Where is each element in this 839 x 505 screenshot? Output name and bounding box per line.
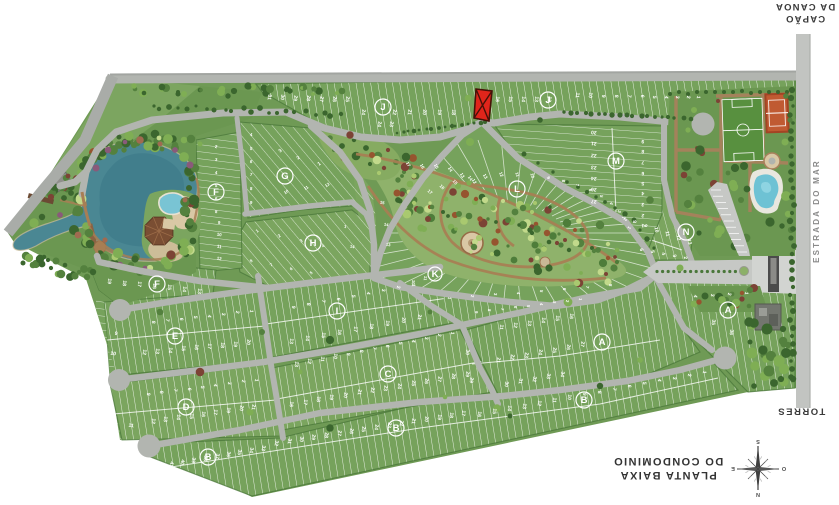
svg-text:DO CONDOMINIO: DO CONDOMINIO: [613, 455, 723, 467]
svg-text:13: 13: [293, 361, 300, 367]
svg-text:20: 20: [423, 416, 430, 422]
svg-text:24: 24: [373, 424, 380, 430]
svg-text:40: 40: [179, 459, 186, 465]
svg-text:13: 13: [154, 348, 161, 354]
svg-text:37: 37: [214, 453, 221, 459]
svg-text:13: 13: [288, 338, 295, 344]
svg-text:14: 14: [540, 317, 547, 323]
svg-text:18: 18: [121, 280, 128, 286]
svg-text:10: 10: [587, 92, 594, 98]
svg-text:26: 26: [331, 96, 338, 102]
svg-text:ESTRADA DO MAR: ESTRADA DO MAR: [812, 159, 821, 263]
svg-text:19: 19: [384, 320, 391, 326]
svg-text:18: 18: [219, 342, 226, 348]
svg-text:17: 17: [212, 409, 219, 415]
svg-text:19: 19: [225, 407, 232, 413]
svg-text:14: 14: [175, 414, 182, 420]
svg-text:27: 27: [318, 96, 325, 102]
svg-text:25: 25: [344, 96, 351, 102]
svg-text:24: 24: [591, 175, 597, 182]
svg-text:26: 26: [423, 378, 430, 384]
svg-text:18: 18: [315, 396, 322, 402]
svg-text:20: 20: [591, 129, 597, 136]
svg-text:15: 15: [320, 332, 327, 338]
svg-text:12: 12: [306, 358, 313, 364]
svg-text:S: S: [756, 438, 760, 444]
svg-text:22: 22: [398, 420, 405, 426]
svg-text:16: 16: [200, 411, 207, 417]
svg-text:11: 11: [551, 397, 558, 403]
svg-text:17: 17: [206, 343, 213, 349]
svg-text:15: 15: [507, 96, 514, 102]
svg-text:25: 25: [410, 380, 417, 386]
svg-text:O: O: [781, 465, 786, 471]
svg-text:16: 16: [288, 401, 295, 407]
svg-text:41: 41: [168, 461, 175, 467]
svg-text:28: 28: [450, 373, 457, 379]
svg-text:CAPÃO: CAPÃO: [785, 13, 825, 24]
svg-text:28: 28: [305, 95, 312, 101]
svg-text:38: 38: [202, 455, 209, 461]
svg-text:28: 28: [323, 432, 330, 438]
svg-text:42: 42: [156, 463, 163, 469]
svg-text:27: 27: [591, 198, 597, 205]
svg-text:21: 21: [250, 404, 257, 410]
svg-text:25: 25: [551, 347, 558, 353]
svg-text:19: 19: [232, 341, 239, 347]
svg-text:A: A: [599, 337, 606, 348]
svg-text:13: 13: [162, 416, 169, 422]
svg-text:12: 12: [512, 322, 519, 328]
svg-text:36: 36: [225, 451, 232, 457]
svg-text:21: 21: [591, 140, 597, 147]
svg-text:N: N: [683, 227, 690, 238]
svg-text:27: 27: [336, 430, 343, 436]
svg-text:B: B: [581, 395, 588, 406]
svg-text:TORRES: TORRES: [777, 406, 825, 417]
svg-text:16: 16: [476, 411, 483, 417]
svg-text:10: 10: [332, 353, 339, 359]
svg-text:12: 12: [150, 418, 157, 424]
svg-text:11: 11: [498, 324, 505, 330]
svg-text:23: 23: [386, 422, 393, 428]
svg-text:A: A: [725, 305, 732, 316]
svg-text:34: 34: [559, 371, 566, 377]
svg-text:24: 24: [376, 121, 383, 127]
svg-text:20: 20: [238, 405, 245, 411]
svg-text:30: 30: [298, 436, 305, 442]
svg-text:25: 25: [360, 426, 367, 432]
svg-text:22: 22: [509, 354, 516, 360]
svg-text:E: E: [731, 465, 735, 471]
svg-text:J: J: [380, 102, 385, 113]
svg-text:31: 31: [286, 438, 293, 444]
svg-text:10: 10: [566, 394, 573, 400]
svg-text:17: 17: [302, 399, 309, 405]
svg-text:DA CANOA: DA CANOA: [775, 1, 835, 12]
svg-text:21: 21: [410, 418, 417, 424]
svg-text:23: 23: [382, 385, 389, 391]
svg-text:34: 34: [248, 447, 255, 453]
svg-text:12: 12: [536, 400, 543, 406]
svg-text:12: 12: [546, 96, 553, 102]
svg-text:PLANTA BAIXA: PLANTA BAIXA: [619, 469, 716, 481]
svg-text:35: 35: [710, 319, 717, 325]
svg-text:K: K: [432, 269, 439, 280]
svg-text:13: 13: [521, 403, 528, 409]
svg-text:L: L: [514, 184, 520, 195]
svg-text:I: I: [336, 306, 339, 317]
svg-text:M: M: [612, 156, 620, 167]
svg-text:20: 20: [245, 339, 252, 345]
svg-text:19: 19: [328, 394, 335, 400]
svg-text:18: 18: [448, 412, 455, 418]
svg-text:15: 15: [491, 408, 498, 414]
svg-text:24: 24: [396, 383, 403, 389]
svg-text:30: 30: [464, 349, 471, 355]
svg-text:16: 16: [151, 283, 158, 289]
svg-text:23: 23: [523, 352, 530, 358]
svg-text:21: 21: [356, 389, 363, 395]
svg-text:22: 22: [391, 109, 398, 115]
svg-text:20: 20: [342, 392, 349, 398]
svg-text:11: 11: [128, 423, 134, 430]
svg-text:29: 29: [310, 434, 317, 440]
svg-text:35: 35: [236, 449, 243, 455]
svg-text:14: 14: [181, 286, 188, 292]
svg-text:N: N: [756, 491, 760, 497]
svg-text:32: 32: [531, 376, 538, 382]
svg-text:17: 17: [136, 281, 143, 287]
svg-text:27: 27: [436, 376, 443, 382]
svg-text:13: 13: [533, 96, 540, 102]
svg-text:18: 18: [450, 109, 457, 115]
svg-text:39: 39: [190, 457, 197, 463]
svg-text:36: 36: [728, 329, 735, 335]
svg-text:32: 32: [273, 440, 280, 446]
svg-text:29: 29: [292, 95, 299, 101]
svg-text:13: 13: [526, 320, 533, 326]
svg-text:33: 33: [260, 445, 267, 451]
svg-text:15: 15: [166, 284, 173, 290]
svg-text:D: D: [183, 402, 190, 413]
svg-text:14: 14: [506, 405, 513, 411]
svg-text:10: 10: [107, 399, 114, 406]
svg-text:18: 18: [368, 323, 375, 329]
svg-text:16: 16: [336, 329, 343, 335]
svg-text:20: 20: [400, 317, 407, 323]
svg-text:15: 15: [188, 413, 195, 419]
svg-text:17: 17: [352, 326, 359, 332]
svg-text:16: 16: [568, 313, 575, 319]
svg-text:15: 15: [180, 345, 187, 351]
svg-text:15: 15: [554, 315, 561, 321]
svg-text:23: 23: [591, 164, 597, 171]
svg-text:21: 21: [416, 314, 423, 320]
svg-text:16: 16: [494, 96, 501, 102]
svg-text:27: 27: [579, 341, 586, 347]
svg-text:19: 19: [436, 109, 443, 115]
svg-text:12: 12: [141, 349, 148, 355]
svg-text:10: 10: [110, 351, 117, 358]
svg-text:24: 24: [537, 349, 544, 355]
svg-text:19: 19: [436, 414, 443, 420]
svg-text:G: G: [281, 171, 288, 182]
svg-text:29: 29: [468, 377, 475, 383]
svg-text:11: 11: [319, 356, 326, 362]
svg-text:14: 14: [167, 347, 174, 353]
svg-text:22: 22: [369, 387, 376, 393]
svg-text:E: E: [172, 331, 178, 342]
svg-text:30: 30: [503, 381, 510, 387]
svg-text:19: 19: [106, 278, 113, 284]
svg-text:13: 13: [196, 288, 203, 294]
svg-text:31: 31: [266, 94, 273, 100]
svg-text:30: 30: [279, 94, 286, 100]
svg-text:16: 16: [193, 344, 200, 350]
svg-text:C: C: [385, 369, 392, 380]
svg-text:26: 26: [348, 428, 355, 434]
svg-text:31: 31: [517, 378, 524, 384]
svg-text:14: 14: [520, 96, 527, 102]
svg-text:H: H: [310, 238, 317, 249]
svg-text:33: 33: [545, 373, 552, 379]
svg-text:21: 21: [495, 357, 502, 363]
svg-text:14: 14: [304, 335, 311, 341]
svg-text:17: 17: [460, 410, 467, 416]
svg-text:11: 11: [574, 92, 581, 98]
svg-text:26: 26: [565, 344, 572, 350]
svg-text:20: 20: [421, 109, 428, 115]
svg-text:23: 23: [388, 121, 395, 127]
svg-text:24: 24: [360, 109, 367, 115]
svg-text:22: 22: [591, 152, 597, 159]
svg-text:21: 21: [406, 109, 413, 115]
